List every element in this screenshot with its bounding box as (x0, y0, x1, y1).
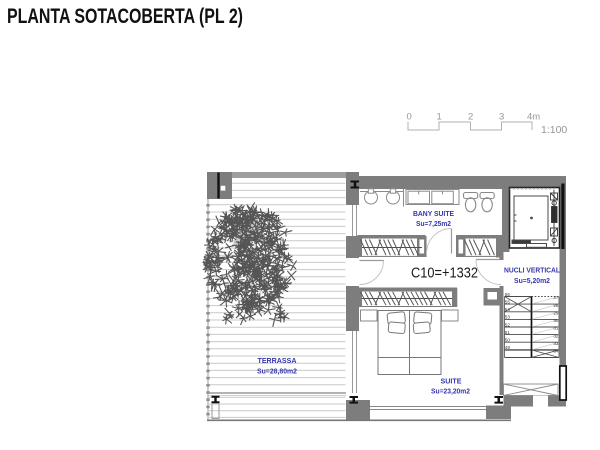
svg-text:30: 30 (553, 318, 559, 323)
svg-text:56: 56 (505, 292, 511, 297)
svg-text:54: 54 (505, 307, 511, 312)
svg-text:52: 52 (505, 322, 511, 327)
svg-text:0: 0 (407, 112, 412, 123)
svg-text:Su=28,80m2: Su=28,80m2 (257, 367, 297, 376)
svg-text:Su=23,20m2: Su=23,20m2 (431, 387, 470, 396)
svg-text:1:100: 1:100 (541, 124, 567, 136)
svg-text:PLANTA SOTACOBERTA (PL 2): PLANTA SOTACOBERTA (PL 2) (7, 5, 243, 28)
svg-text:34: 34 (553, 349, 559, 354)
svg-text:4m: 4m (527, 112, 540, 123)
svg-text:49: 49 (505, 345, 511, 350)
svg-text:C10=+1332: C10=+1332 (411, 265, 478, 281)
svg-text:53: 53 (505, 315, 511, 320)
svg-text:50: 50 (505, 338, 511, 343)
svg-text:SUITE: SUITE (441, 377, 462, 386)
svg-text:32: 32 (553, 333, 559, 338)
svg-text:1: 1 (437, 112, 442, 123)
svg-text:BANY SUITE: BANY SUITE (413, 209, 454, 218)
svg-text:33: 33 (553, 341, 559, 346)
svg-text:Su=7,25m2: Su=7,25m2 (416, 219, 451, 228)
svg-text:3: 3 (499, 112, 504, 123)
svg-text:Su=5,20m2: Su=5,20m2 (514, 276, 550, 285)
svg-text:28: 28 (553, 303, 559, 308)
svg-text:TERRASSA: TERRASSA (258, 356, 297, 365)
svg-text:2: 2 (468, 112, 473, 123)
svg-text:31: 31 (553, 326, 559, 331)
svg-text:NUCLI VERTICAL: NUCLI VERTICAL (504, 266, 560, 275)
svg-text:51: 51 (505, 330, 511, 335)
svg-text:29: 29 (553, 310, 559, 315)
svg-text:27: 27 (553, 295, 559, 300)
svg-text:55: 55 (505, 299, 511, 304)
